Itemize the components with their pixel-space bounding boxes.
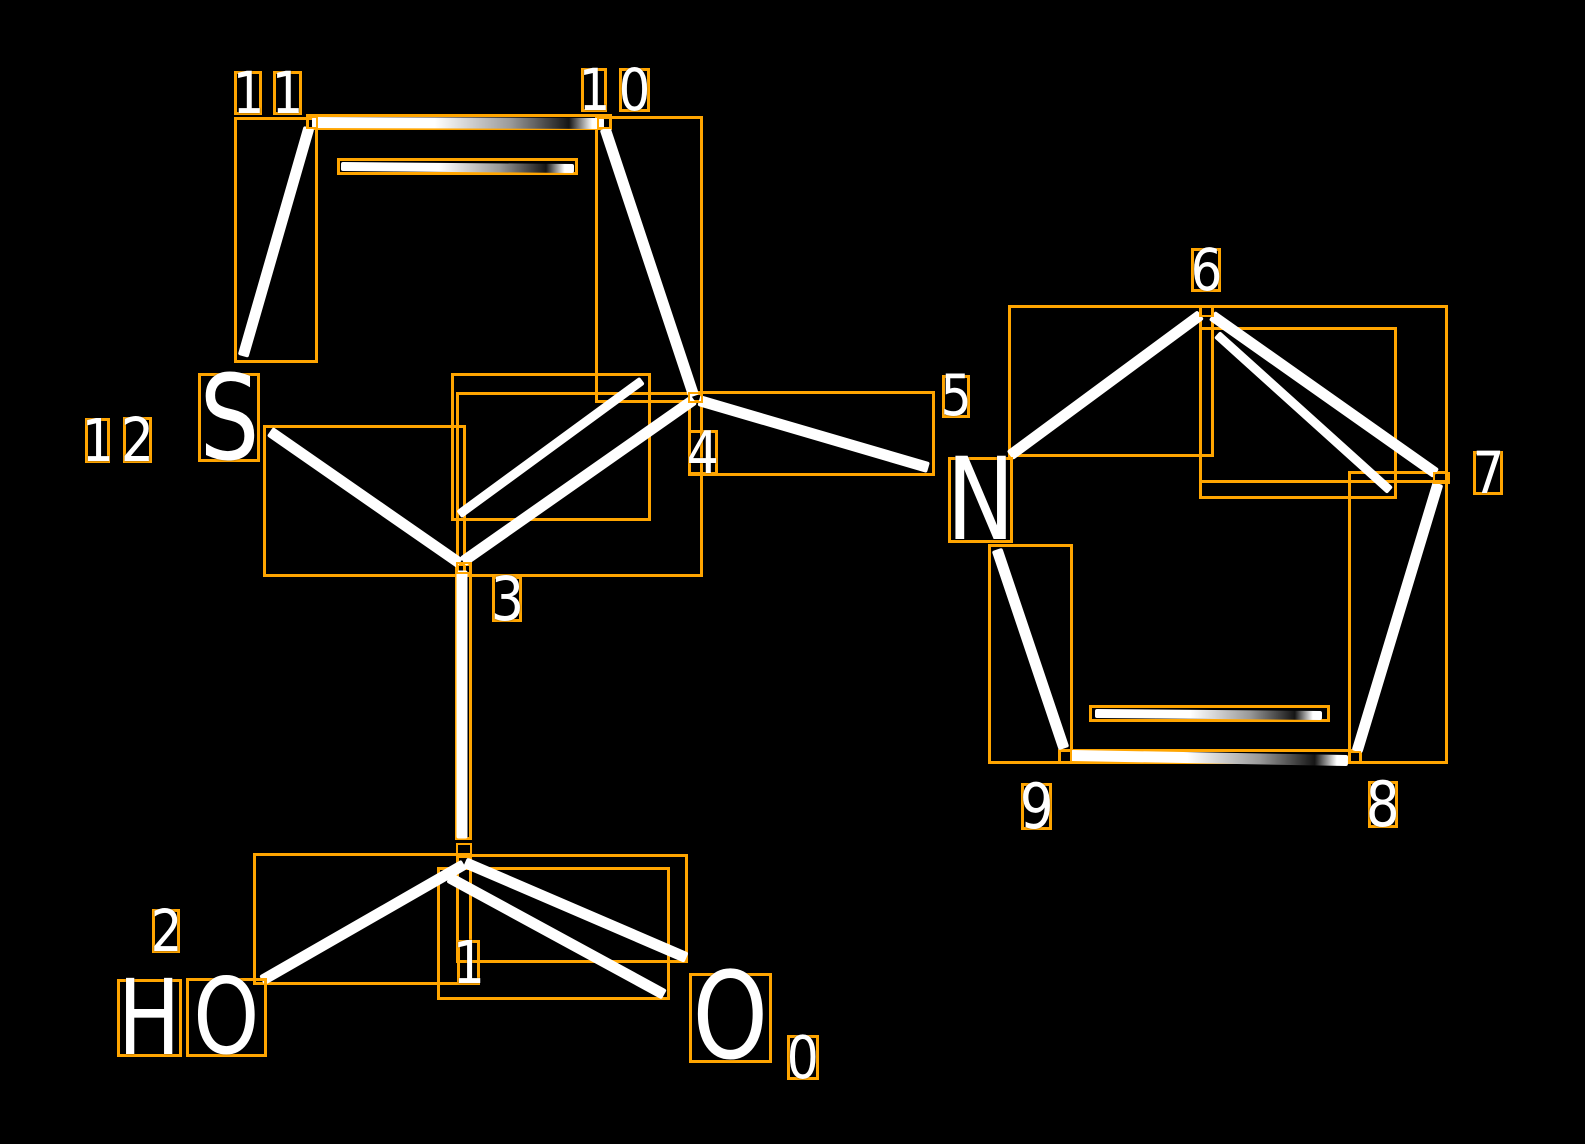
label-4-text: 4 (687, 423, 719, 482)
label-7-text: 7 (1472, 444, 1504, 502)
pt-atom-6 (1199, 305, 1214, 317)
pt-atom-9 (1059, 750, 1072, 763)
bond-8-9-inner (1095, 709, 1322, 720)
label-6: 6 (1191, 248, 1221, 292)
atom-letter-O-hydroxyl-2: O (186, 978, 267, 1057)
label-11-digit-2-text: 1 (272, 64, 304, 122)
atom-letter-O-hydroxyl-2-text: O (193, 965, 259, 1070)
pt-atom-3 (456, 562, 472, 574)
label-9-text: 9 (1020, 776, 1054, 838)
pt-atom-7 (1433, 472, 1450, 484)
label-4: 4 (688, 430, 718, 475)
atom-letter-H-hydroxyl: H (117, 979, 182, 1057)
label-1-text: 1 (452, 933, 484, 992)
atom-letter-S-12-text: S (199, 359, 259, 477)
label-3: 3 (492, 576, 522, 622)
label-11-digit-1-text: 1 (232, 64, 264, 122)
label-5-text: 5 (940, 368, 971, 425)
label-8: 8 (1368, 781, 1398, 828)
label-0-text: 0 (787, 1028, 819, 1087)
label-12-digit-1-text: 1 (81, 411, 113, 470)
pt-atom-4 (688, 392, 703, 403)
label-6-text: 6 (1190, 241, 1222, 299)
label-3-text: 3 (490, 569, 523, 630)
label-9: 9 (1021, 783, 1052, 830)
bond-11-10-inner (341, 162, 574, 173)
label-12-digit-2-text: 2 (121, 410, 154, 471)
molecule-annotation-canvas: SNHOO1110123456789210 (0, 0, 1585, 1144)
atom-letter-H-hydroxyl-text: H (118, 966, 181, 1070)
bond-11-10 (312, 117, 604, 129)
label-10-digit-2: 0 (619, 68, 650, 112)
label-12-digit-1: 1 (85, 418, 110, 463)
atom-letter-S-12: S (198, 373, 260, 462)
atom-letter-O-carbonyl-0: O (689, 973, 772, 1063)
pt-atom-8 (1348, 751, 1361, 763)
label-5: 5 (942, 375, 970, 418)
label-10-digit-1: 1 (581, 68, 607, 112)
atom-letter-O-carbonyl-0-text: O (693, 958, 769, 1078)
atom-letter-N-5: N (948, 457, 1013, 543)
label-2: 2 (152, 909, 180, 953)
pt-atom-11 (306, 116, 318, 129)
label-1: 1 (457, 940, 480, 985)
label-2-text: 2 (150, 902, 182, 960)
pt-atom-1 (456, 843, 472, 858)
bond-3-1 (457, 570, 468, 838)
atom-letter-N-5-text: N (946, 443, 1014, 557)
label-11-digit-2: 1 (273, 71, 302, 115)
label-8-text: 8 (1366, 774, 1400, 836)
label-7: 7 (1473, 451, 1503, 495)
label-11-digit-1: 1 (234, 71, 262, 115)
label-0: 0 (787, 1035, 819, 1080)
label-10-digit-1-text: 1 (578, 61, 610, 119)
label-12-digit-2: 2 (123, 417, 152, 463)
label-10-digit-2-text: 0 (619, 61, 651, 119)
